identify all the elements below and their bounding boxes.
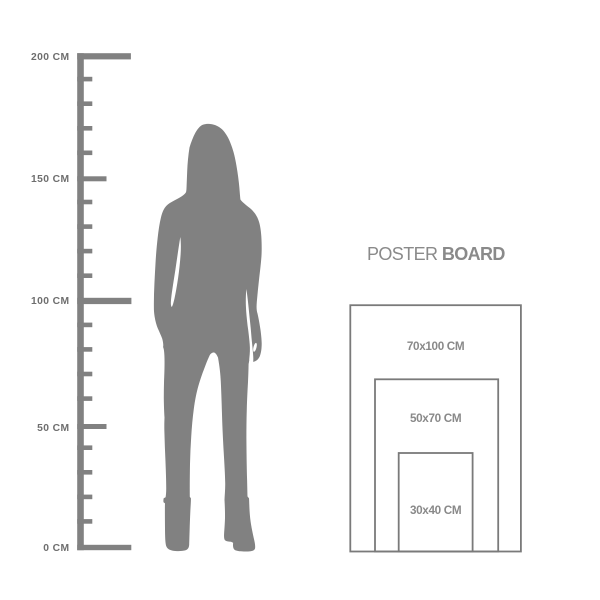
svg-text:200 CM: 200 CM: [31, 52, 69, 63]
svg-text:POSTER BOARD: POSTER BOARD: [367, 244, 505, 264]
svg-text:50x70 CM: 50x70 CM: [410, 412, 461, 425]
svg-text:100 CM: 100 CM: [31, 296, 69, 307]
svg-text:50 CM: 50 CM: [37, 423, 69, 434]
svg-text:70x100 CM: 70x100 CM: [407, 340, 464, 353]
svg-text:150 CM: 150 CM: [31, 174, 69, 185]
svg-text:0 CM: 0 CM: [43, 543, 69, 554]
svg-text:30x40 CM: 30x40 CM: [410, 504, 461, 517]
